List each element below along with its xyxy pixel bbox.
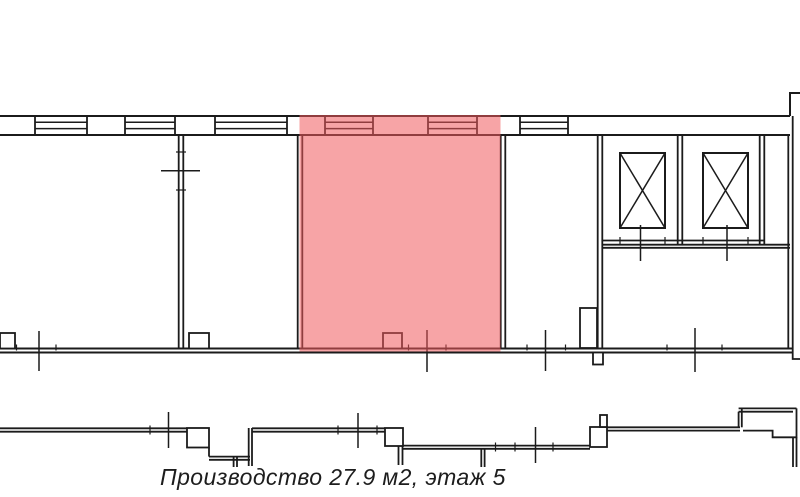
wall-pier <box>189 333 209 349</box>
window-icon <box>125 116 175 135</box>
floor-plan-image: Производство 27.9 м2, этаж 5 <box>0 0 800 497</box>
elevator-block <box>602 153 790 261</box>
elevator-shaft-icon <box>620 153 665 228</box>
wall-pier <box>593 353 603 365</box>
wall-pilaster <box>580 308 597 348</box>
lower-wing-outline <box>0 408 797 467</box>
window-icon <box>520 116 568 135</box>
window-icon <box>215 116 287 135</box>
floor-plan-svg <box>0 0 800 497</box>
plan-caption: Производство 27.9 м2, этаж 5 <box>160 464 680 491</box>
window-icon <box>35 116 87 135</box>
highlighted-room-overlay <box>300 115 501 352</box>
elevator-shaft-icon <box>703 153 748 228</box>
wall-pier <box>0 333 15 349</box>
